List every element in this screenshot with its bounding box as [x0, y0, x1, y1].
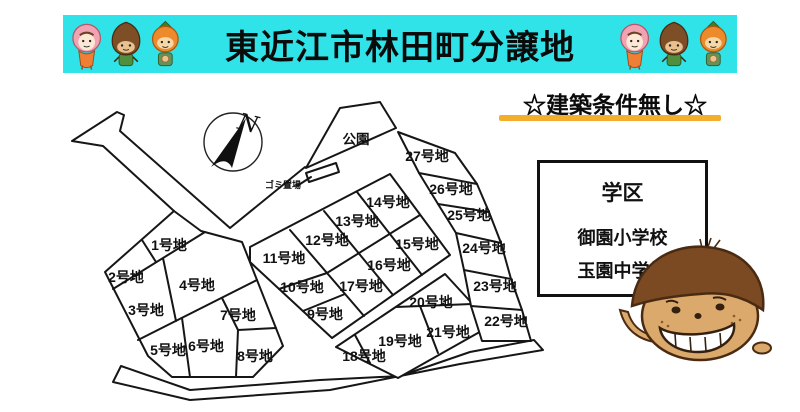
lot-label-12: 12号地	[305, 232, 349, 248]
lot-label-26: 26号地	[429, 181, 473, 197]
lot-label-13: 13号地	[335, 213, 379, 229]
lot-label-8: 8号地	[237, 348, 273, 364]
lot-label-17: 17号地	[339, 278, 383, 294]
lot-label-9: 9号地	[307, 306, 343, 322]
school-district-title: 学区	[602, 177, 644, 207]
lot-label-18: 18号地	[342, 348, 386, 364]
lot-label-23: 23号地	[473, 278, 517, 294]
lot-label-3: 3号地	[128, 302, 164, 318]
lot-label-27: 27号地	[405, 148, 449, 164]
lot-label-7: 7号地	[220, 307, 256, 323]
lot-label-19: 19号地	[378, 333, 422, 349]
lot-label-20: 20号地	[409, 294, 453, 310]
mascot-eye-left	[672, 307, 681, 314]
lot-label-2: 2号地	[108, 269, 144, 285]
lot-label-1: 1号地	[151, 237, 187, 253]
park-label: 公園	[343, 132, 370, 147]
lot-label-16: 16号地	[367, 257, 411, 273]
lot-label-21: 21号地	[426, 324, 470, 340]
garbage-station: ゴミ置場	[265, 163, 339, 190]
mascot-eye-right	[716, 304, 725, 311]
chestnut-mascot	[612, 236, 780, 366]
lot-label-24: 24号地	[462, 240, 506, 256]
garbage-label: ゴミ置場	[265, 179, 301, 190]
lot-label-4: 4号地	[179, 277, 215, 293]
lot-label-10: 10号地	[280, 279, 324, 295]
lot-label-6: 6号地	[188, 338, 224, 354]
mascot-nose	[695, 313, 702, 319]
access-road	[72, 112, 305, 228]
lot-label-5: 5号地	[150, 342, 186, 358]
lot-label-11: 11号地	[263, 250, 306, 266]
lot-label-22: 22号地	[484, 313, 528, 329]
flyer-page: 公園 ゴミ置場 N 1号地2号地3号地4号地5号地6号地7号地8号地9号地10号…	[0, 0, 800, 412]
lot-label-14: 14号地	[366, 194, 410, 210]
lot-label-15: 15号地	[395, 236, 439, 252]
lot-label-25: 25号地	[447, 207, 491, 223]
compass: N	[204, 109, 262, 171]
park-area: 公園	[306, 102, 396, 168]
mascot-hand-right	[753, 343, 771, 354]
